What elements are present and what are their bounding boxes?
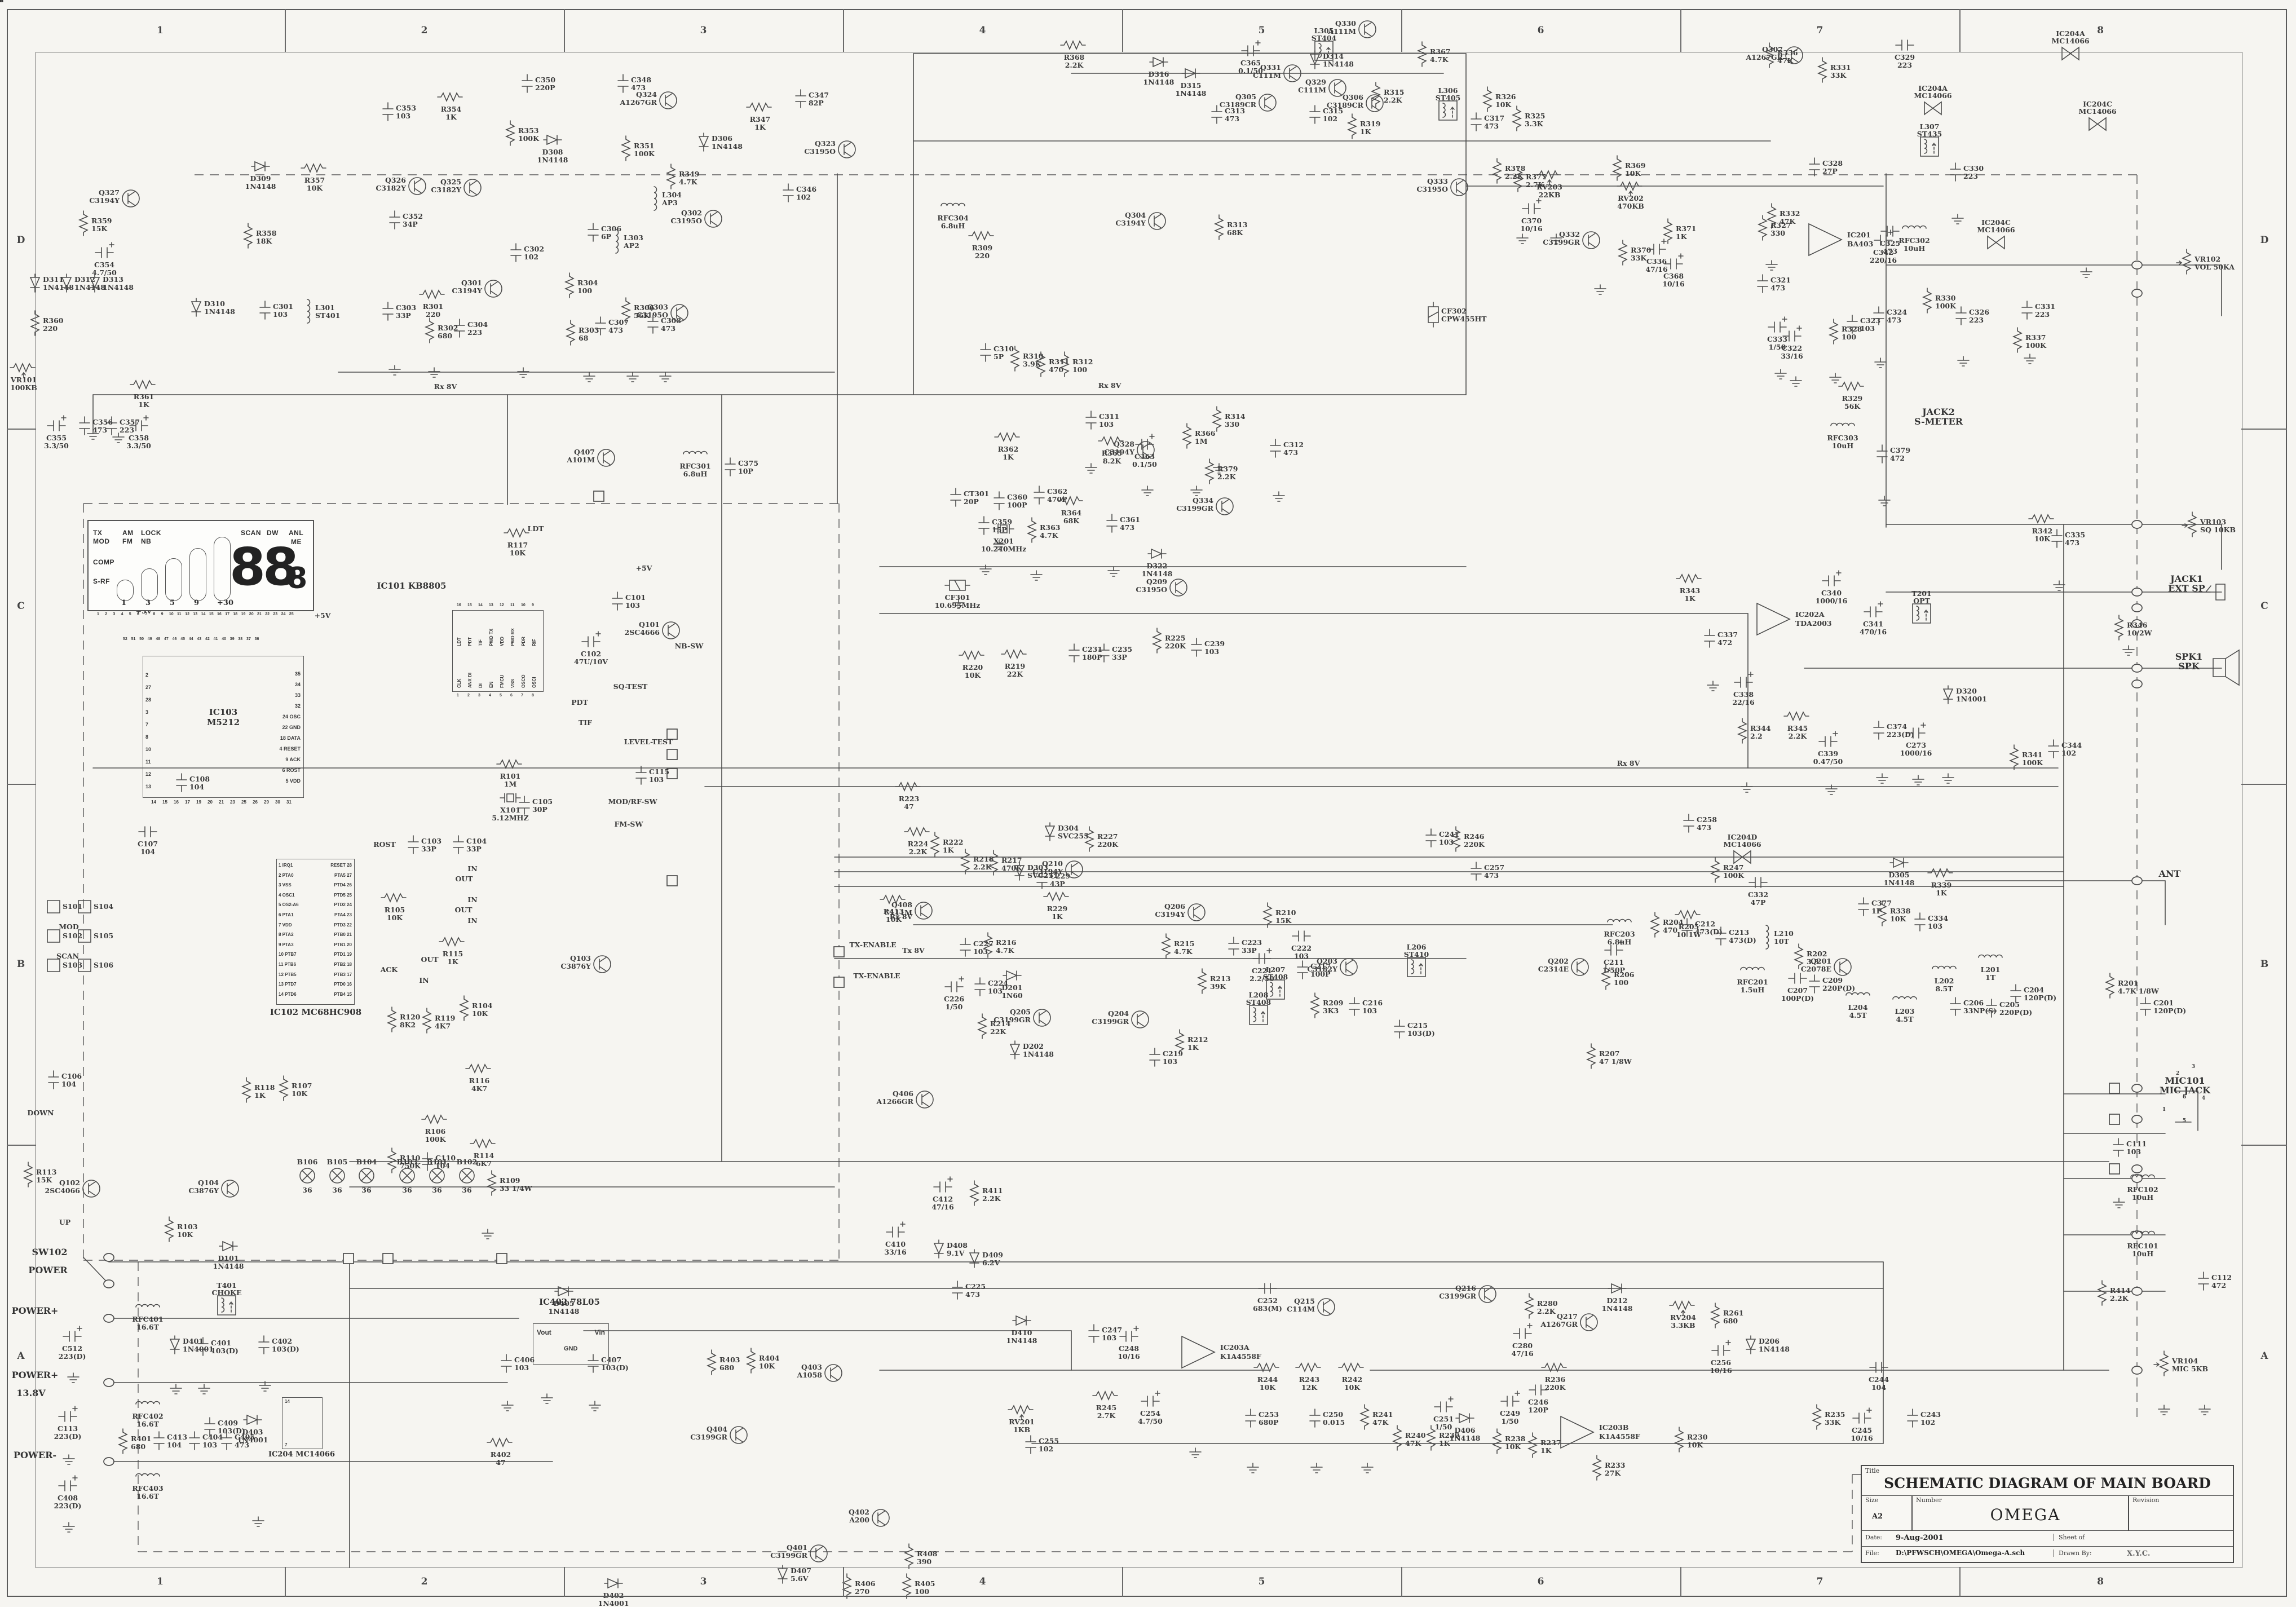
ic101-pinnum-14: 14 xyxy=(478,603,483,607)
ic103-pin-10: 10 xyxy=(145,747,151,752)
grid-tick-right xyxy=(2241,429,2287,430)
lcd-indicator-mod: MOD xyxy=(93,537,110,545)
ic103-pin-11: 11 xyxy=(145,759,151,765)
ic102-pin-PTD0: PTD0 16 xyxy=(304,982,352,987)
lcd-pin-3: 3 xyxy=(113,612,115,616)
grid-col-label-8-bottom: 8 xyxy=(2097,1576,2104,1587)
lcd-pin-47: 47 xyxy=(164,637,169,641)
ic102-pin-PTD6: 14 PTD6 xyxy=(279,992,297,997)
ic402-pin-vout: Vout xyxy=(537,1328,551,1336)
scale-label-3: 3 xyxy=(145,599,151,607)
ic101-label: IC101 KB8805 xyxy=(372,581,451,591)
lcd-indicator-anl: ANL xyxy=(289,529,303,537)
ic103-pin-13: 13 xyxy=(145,784,151,789)
ic102-pin-PTB7: 10 PTB7 xyxy=(279,952,297,957)
lcd-indicator-scan: SCAN xyxy=(241,529,261,537)
lcd-pin-15: 15 xyxy=(209,612,214,616)
ic101-pin-OSCO: OSCO xyxy=(521,654,526,688)
ic103-pin-28: 28 xyxy=(145,697,151,703)
title-row: Title SCHEMATIC DIAGRAM OF MAIN BOARD xyxy=(1862,1466,2233,1496)
ic204-pin7: 7 xyxy=(285,1442,287,1447)
ic101-pin-DI: DI xyxy=(478,654,483,688)
ic103-pin-15: 15 xyxy=(162,800,167,805)
grid-tick-bottom xyxy=(564,1567,565,1597)
revision-caption: Revision xyxy=(2132,1496,2159,1504)
signal-bar-5 xyxy=(214,537,231,601)
grid-tick-top xyxy=(1401,9,1402,52)
lcd-pin-22: 22 xyxy=(265,612,270,616)
inner-border xyxy=(36,52,2242,1568)
scale-label-1: 1 xyxy=(121,599,126,607)
grid-tick-bottom xyxy=(1401,1567,1402,1597)
ic101-pinnum-1: 1 xyxy=(457,694,459,697)
ic102-pin-PTB6: 11 PTB6 xyxy=(279,962,296,967)
ic102-pin-PTA5: PTA5 27 xyxy=(304,873,352,878)
signal-bar-4 xyxy=(189,548,206,601)
ic101-pin-ANX DI: ANX DI xyxy=(467,654,473,688)
ic103-pin-33: 33 xyxy=(251,692,301,698)
ic204-power-block: 14 7 xyxy=(282,1397,323,1449)
ic103-pin-30: 30 xyxy=(275,800,280,805)
ic101-pin-LDT: LDT xyxy=(457,613,462,646)
ic102-pin-PTD1: PTD1 19 xyxy=(304,952,352,957)
title-block: Title SCHEMATIC DIAGRAM OF MAIN BOARD Si… xyxy=(1861,1465,2234,1563)
ic102-pin-PTD3: PTD3 22 xyxy=(304,922,352,928)
grid-tick-top xyxy=(564,9,565,52)
ic103-pin-8: 8 xyxy=(145,734,148,740)
grid-tick-top xyxy=(1122,9,1123,52)
ic101-pinnum-13: 13 xyxy=(489,603,493,607)
ic102-pin-PTB1: PTB1 20 xyxy=(304,942,352,947)
ic101-pin-OSCI: OSCI xyxy=(532,654,537,688)
grid-tick-top xyxy=(843,9,844,52)
ic103-pin-2: 2 xyxy=(145,672,148,678)
grid-row-label-A-right: A xyxy=(2260,1350,2268,1362)
ic102-pin-PTB5: 12 PTB5 xyxy=(279,972,297,977)
lcd-pin-12: 12 xyxy=(185,612,189,616)
ic103-pin-35: 35 xyxy=(251,671,301,677)
grid-tick-bottom xyxy=(843,1567,844,1597)
grid-tick-bottom xyxy=(1122,1567,1123,1597)
ic101-pin-VSS: VSS xyxy=(510,654,515,688)
ic101-pin-EN: EN xyxy=(489,654,494,688)
ic103-pin-17: 17 xyxy=(185,800,190,805)
grid-tick-bottom xyxy=(285,1567,286,1597)
ic102-pin-PTA1: 6 PTA1 xyxy=(279,912,294,917)
grid-tick-left xyxy=(7,1145,36,1146)
ic402-label: IC402 78L05 xyxy=(524,1297,615,1307)
lcd-digit-small: 8 xyxy=(287,564,307,593)
ic101-pin-VDD: VDD xyxy=(500,613,505,646)
ic101-pin-TIF: TIF xyxy=(478,613,483,646)
size-caption: Size xyxy=(1865,1496,1878,1504)
ic103-pin-22 GND: 22 GND xyxy=(251,725,301,730)
ic101-pin-CLK: CLK xyxy=(457,654,462,688)
lcd-pin-50: 50 xyxy=(139,637,144,641)
lcd-pin-20: 20 xyxy=(249,612,254,616)
ic101-pin-PWD TX: PWD TX xyxy=(489,613,494,646)
ic102-label: IC102 MC68HC908 xyxy=(242,1007,389,1017)
lcd-pin-38: 38 xyxy=(238,637,242,641)
lcd-pin-43: 43 xyxy=(197,637,201,641)
lcd-pin-10: 10 xyxy=(169,612,174,616)
grid-row-label-B-left: B xyxy=(17,959,25,970)
lcd-indicator-nb: NB xyxy=(141,537,151,545)
ic103-pin-9 ACK: 9 ACK xyxy=(251,757,301,762)
ic103-pin-24 OSC: 24 OSC xyxy=(251,714,301,719)
lcd-pin-14: 14 xyxy=(201,612,206,616)
grid-col-label-8-top: 8 xyxy=(2097,25,2104,36)
ic103-pin-20: 20 xyxy=(207,800,213,805)
grid-col-label-1-top: 1 xyxy=(157,25,164,36)
file-row: File: D:\PFWSCH\OMEGA\Omega-A.sch Drawn … xyxy=(1862,1546,2233,1562)
lcd-digits-main: 88 xyxy=(229,541,296,593)
grid-tick-right xyxy=(2241,784,2287,785)
signal-bar-2 xyxy=(141,568,158,601)
ic101-pin-PWD RX: PWD RX xyxy=(510,613,515,646)
grid-row-label-C-left: C xyxy=(17,601,25,612)
ic102-pin-VSS: 3 VSS xyxy=(279,882,292,888)
grid-tick-left xyxy=(7,784,36,785)
ic101-pin-RIF: RIF xyxy=(532,613,537,646)
ic103-part: M5212 xyxy=(207,717,240,727)
file-value: D:\PFWSCH\OMEGA\Omega-A.sch xyxy=(1896,1549,2025,1557)
grid-col-label-6-bottom: 6 xyxy=(1538,1576,1544,1587)
ic102-pin-RESET: RESET 28 xyxy=(304,863,352,868)
drawnby-caption: Drawn By: xyxy=(2054,1549,2092,1557)
grid-col-label-6-top: 6 xyxy=(1538,25,1544,36)
ic102-pin-PTD7: 13 PTD7 xyxy=(279,982,297,987)
lcd-pin-8: 8 xyxy=(153,612,155,616)
ic402-block: Vout Vin GND xyxy=(533,1323,609,1365)
lcd-pin-17: 17 xyxy=(225,612,229,616)
grid-tick-bottom xyxy=(1680,1567,1681,1597)
lcd-pin-7: 7 xyxy=(145,612,147,616)
ic102-pin-PTB0: PTB0 21 xyxy=(304,932,352,937)
grid-col-label-7-top: 7 xyxy=(1817,25,1823,36)
ic103-pin-19: 19 xyxy=(196,800,201,805)
ic101-pinnum-12: 12 xyxy=(500,603,504,607)
ic402-pin-gnd: GND xyxy=(564,1345,577,1352)
lcd-pin-40: 40 xyxy=(222,637,226,641)
lcd-pin-48: 48 xyxy=(156,637,160,641)
ic101-pinnum-11: 11 xyxy=(510,603,514,607)
lcd-indicator-am: AM xyxy=(122,529,134,537)
ic101-pinnum-5: 5 xyxy=(500,694,502,697)
lcd-pin-49: 49 xyxy=(148,637,152,641)
grid-row-label-D-left: D xyxy=(17,235,25,246)
ic103-pin-32: 32 xyxy=(251,703,301,709)
ic102-pin-PTA4: PTA4 23 xyxy=(304,912,352,917)
lcd-pin-36: 36 xyxy=(255,637,259,641)
grid-row-label-B-right: B xyxy=(2260,959,2268,970)
schematic-sheet: 75151481312984231Rx 8VRx 8VRx 8VRx 8VTx … xyxy=(0,0,2296,1607)
ic102-pin-OS2-A6: 5 OS2-A6 xyxy=(279,902,299,907)
ic204-label: IC204 MC14066 xyxy=(257,1450,347,1459)
grid-col-label-7-bottom: 7 xyxy=(1817,1576,1823,1587)
grid-tick-left xyxy=(7,429,36,430)
lcd-pin-11: 11 xyxy=(177,612,181,616)
date-caption: Date: xyxy=(1865,1534,1882,1541)
ic101-pinnum-10: 10 xyxy=(521,603,526,607)
comp-label: 1N4001 xyxy=(598,1599,629,1607)
lcd-pin-37: 37 xyxy=(246,637,251,641)
ic103-pin-7: 7 xyxy=(145,722,148,727)
ic101-pin-PDT: PDT xyxy=(467,613,473,646)
ic101-pinnum-8: 8 xyxy=(532,694,534,697)
sheet-caption: Sheet of xyxy=(2054,1534,2085,1541)
lcd-pin-52: 52 xyxy=(123,637,127,641)
lcd-pin-24: 24 xyxy=(281,612,286,616)
grid-col-label-5-bottom: 5 xyxy=(1259,1576,1265,1587)
signal-bar-3 xyxy=(165,558,182,601)
ic102-pin-IRQ1: 1 IRQ1 xyxy=(279,863,293,868)
ic103-pin-29: 29 xyxy=(264,800,269,805)
grid-col-label-2-bottom: 2 xyxy=(421,1576,428,1587)
ic103-pin-25: 25 xyxy=(241,800,246,805)
lcd-pin-6: 6 xyxy=(137,612,139,616)
grid-tick-top xyxy=(1959,9,1961,52)
signal-bar-1 xyxy=(117,580,134,601)
ic103-pin-16: 16 xyxy=(174,800,179,805)
ic102-pin-PTA2: 8 PTA2 xyxy=(279,932,294,937)
ic101-pinnum-9: 9 xyxy=(532,603,534,607)
grid-tick-top xyxy=(1680,9,1681,52)
ic102-pin-PTA3: 9 PTA3 xyxy=(279,942,294,947)
ic402-pin-vin: Vin xyxy=(595,1328,605,1336)
lcd-pin-1: 1 xyxy=(97,612,99,616)
ic101-pin-FMCU: FMCU xyxy=(500,654,505,688)
number-caption: Number xyxy=(1916,1496,1942,1504)
grid-tick-right xyxy=(2241,1145,2287,1146)
grid-row-label-D-right: D xyxy=(2260,235,2269,246)
ic101-block xyxy=(452,610,544,692)
ic101-pinnum-2: 2 xyxy=(467,694,470,697)
lcd-pin-4: 4 xyxy=(121,612,123,616)
ic102-pin-PTD2: PTD2 24 xyxy=(304,902,352,907)
ic204-pin14: 14 xyxy=(285,1399,290,1404)
lcd-pin-42: 42 xyxy=(205,637,210,641)
scale-label-9: 9 xyxy=(194,599,199,607)
lcd-indicator-dw: DW xyxy=(267,529,279,537)
ic103-pin-27: 27 xyxy=(145,685,151,690)
ic103-pin-34: 34 xyxy=(251,682,301,687)
ic103-pin-5 VDD: 5 VDD xyxy=(251,778,301,784)
size-value: A2 xyxy=(1872,1512,1883,1521)
ic101-pinnum-3: 3 xyxy=(478,694,480,697)
grid-col-label-4-top: 4 xyxy=(979,25,986,36)
lcd-pin-2: 2 xyxy=(105,612,107,616)
lcd-pin-51: 51 xyxy=(131,637,136,641)
ic102-pin-PTB4: PTB4 15 xyxy=(304,992,352,997)
date-value: 9-Aug-2001 xyxy=(1896,1534,1944,1542)
grid-tick-bottom xyxy=(1959,1567,1961,1597)
grid-col-label-4-bottom: 4 xyxy=(979,1576,986,1587)
ic101-pinnum-7: 7 xyxy=(521,694,523,697)
lcd-pin-45: 45 xyxy=(180,637,185,641)
net-number: 1 xyxy=(0,0,2,4)
lcd-indicator-lock: LOCK xyxy=(141,529,161,537)
ic102-pin-PTB2: PTB2 18 xyxy=(304,962,352,967)
ic103-pin-3: 3 xyxy=(145,709,148,715)
grid-col-label-3-top: 3 xyxy=(700,25,707,36)
lcd-indicator-srf: S-RF xyxy=(93,577,110,585)
grid-tick-top xyxy=(285,9,286,52)
lcd-indicator-tx: TX xyxy=(93,529,102,537)
grid-col-label-1-bottom: 1 xyxy=(157,1576,164,1587)
grid-col-label-3-bottom: 3 xyxy=(700,1576,707,1587)
ic101-pinnum-6: 6 xyxy=(510,694,513,697)
ic103-pin-26: 26 xyxy=(253,800,258,805)
lcd-pin-41: 41 xyxy=(214,637,218,641)
ic102-pin-PTA0: 2 PTA0 xyxy=(279,873,294,878)
title-caption: Title xyxy=(1865,1467,1879,1474)
ic103-pin-6 ROST: 6 ROST xyxy=(251,767,301,773)
ic101-pinnum-4: 4 xyxy=(489,694,491,697)
ic101-pinnum-15: 15 xyxy=(467,603,472,607)
sheet-title: SCHEMATIC DIAGRAM OF MAIN BOARD xyxy=(1862,1475,2233,1491)
lcd-pin-23: 23 xyxy=(273,612,277,616)
date-row: Date: 9-Aug-2001 Sheet of xyxy=(1862,1530,2233,1547)
lcd-display: TX MOD AM FM LOCK NB COMP S-RF SCAN DW A… xyxy=(87,520,314,611)
lcd-pin-18: 18 xyxy=(233,612,237,616)
lcd-pin-9: 9 xyxy=(161,612,164,616)
ic102-pin-PTD4: PTD4 26 xyxy=(304,882,352,888)
scale-label-5: 5 xyxy=(170,599,175,607)
ic103-pin-31: 31 xyxy=(286,800,292,805)
grid-col-label-2-top: 2 xyxy=(421,25,428,36)
ic103-pin-12: 12 xyxy=(145,771,151,777)
ic102-pin-OSC1: 4 OSC1 xyxy=(279,893,294,898)
grid-col-label-5-top: 5 xyxy=(1259,25,1265,36)
ic103-pin-21: 21 xyxy=(219,800,224,805)
ic102-pin-VDD: 7 VDD xyxy=(279,922,292,928)
number-value: OMEGA xyxy=(1929,1506,2121,1524)
lcd-pin-21: 21 xyxy=(257,612,262,616)
lcd-pin-19: 19 xyxy=(241,612,246,616)
lcd-pin-5: 5 xyxy=(129,612,131,616)
ic103-ref: IC103 xyxy=(209,707,237,717)
ic102-pin-PTD5: PTD5 25 xyxy=(304,893,352,898)
lcd-indicator-comp: COMP xyxy=(93,558,114,566)
size-number-row: Size A2 Number OMEGA Revision xyxy=(1862,1495,2233,1531)
lcd-pin-25: 25 xyxy=(289,612,294,616)
drawnby-value: X.Y.C. xyxy=(2127,1549,2150,1558)
ic103-pin-23: 23 xyxy=(230,800,235,805)
ic101-pinnum-16: 16 xyxy=(457,603,461,607)
grid-row-label-A-left: A xyxy=(17,1350,24,1362)
ic103-pin-14: 14 xyxy=(151,800,156,805)
scale-label-+30: +30 xyxy=(217,599,233,607)
lcd-pin-16: 16 xyxy=(217,612,222,616)
ic103-pin-18 DATA: 18 DATA xyxy=(251,735,301,741)
ic102-pin-PTB3: PTB3 17 xyxy=(304,972,352,977)
ic101-pin-PDR: PDR xyxy=(521,613,526,646)
ic103-pin-4 RESET: 4 RESET xyxy=(251,746,301,752)
lcd-indicator-fm: FM xyxy=(122,537,133,545)
lcd-pin-46: 46 xyxy=(173,637,177,641)
file-caption: File: xyxy=(1865,1549,1879,1557)
lcd-pin-44: 44 xyxy=(189,637,193,641)
grid-row-label-C-right: C xyxy=(2260,601,2268,612)
lcd-pin-39: 39 xyxy=(230,637,235,641)
lcd-pin-13: 13 xyxy=(193,612,197,616)
